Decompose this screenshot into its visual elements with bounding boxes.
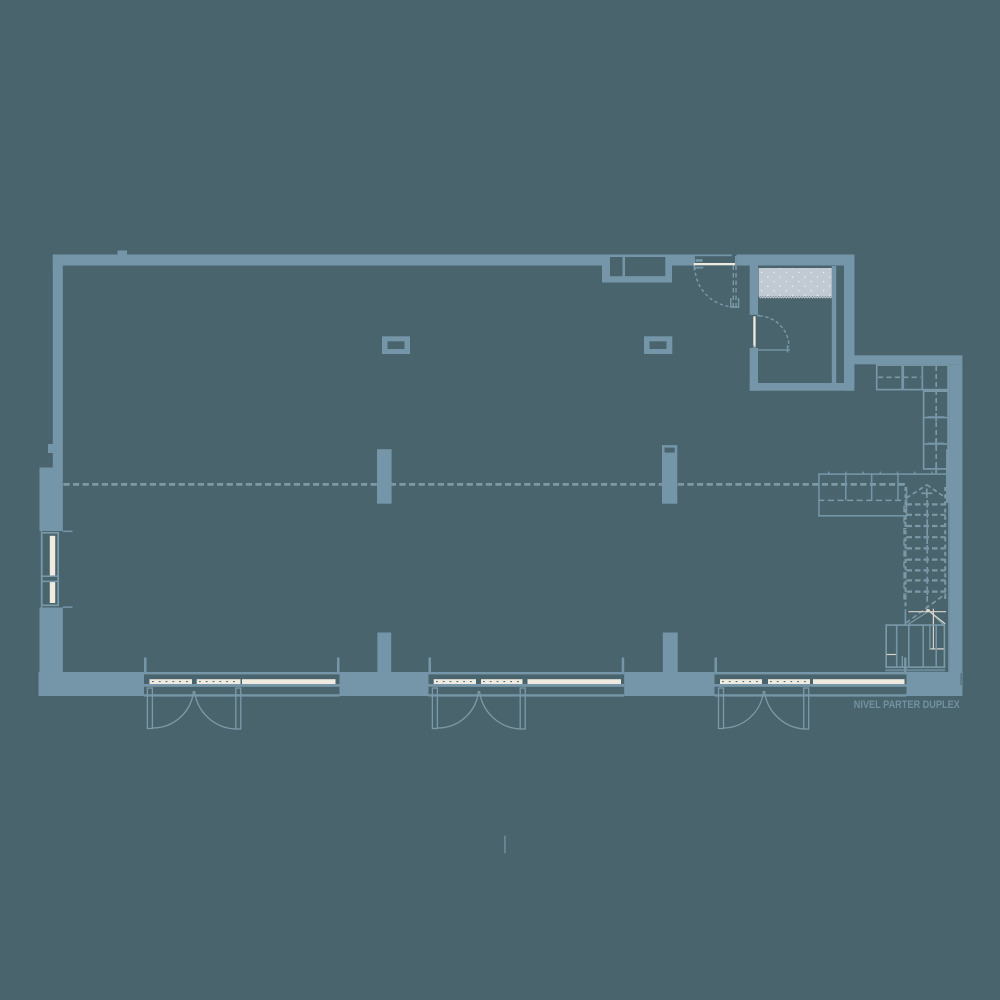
- svg-text:NIVEL PARTER DUPLEX: NIVEL PARTER DUPLEX: [854, 699, 960, 711]
